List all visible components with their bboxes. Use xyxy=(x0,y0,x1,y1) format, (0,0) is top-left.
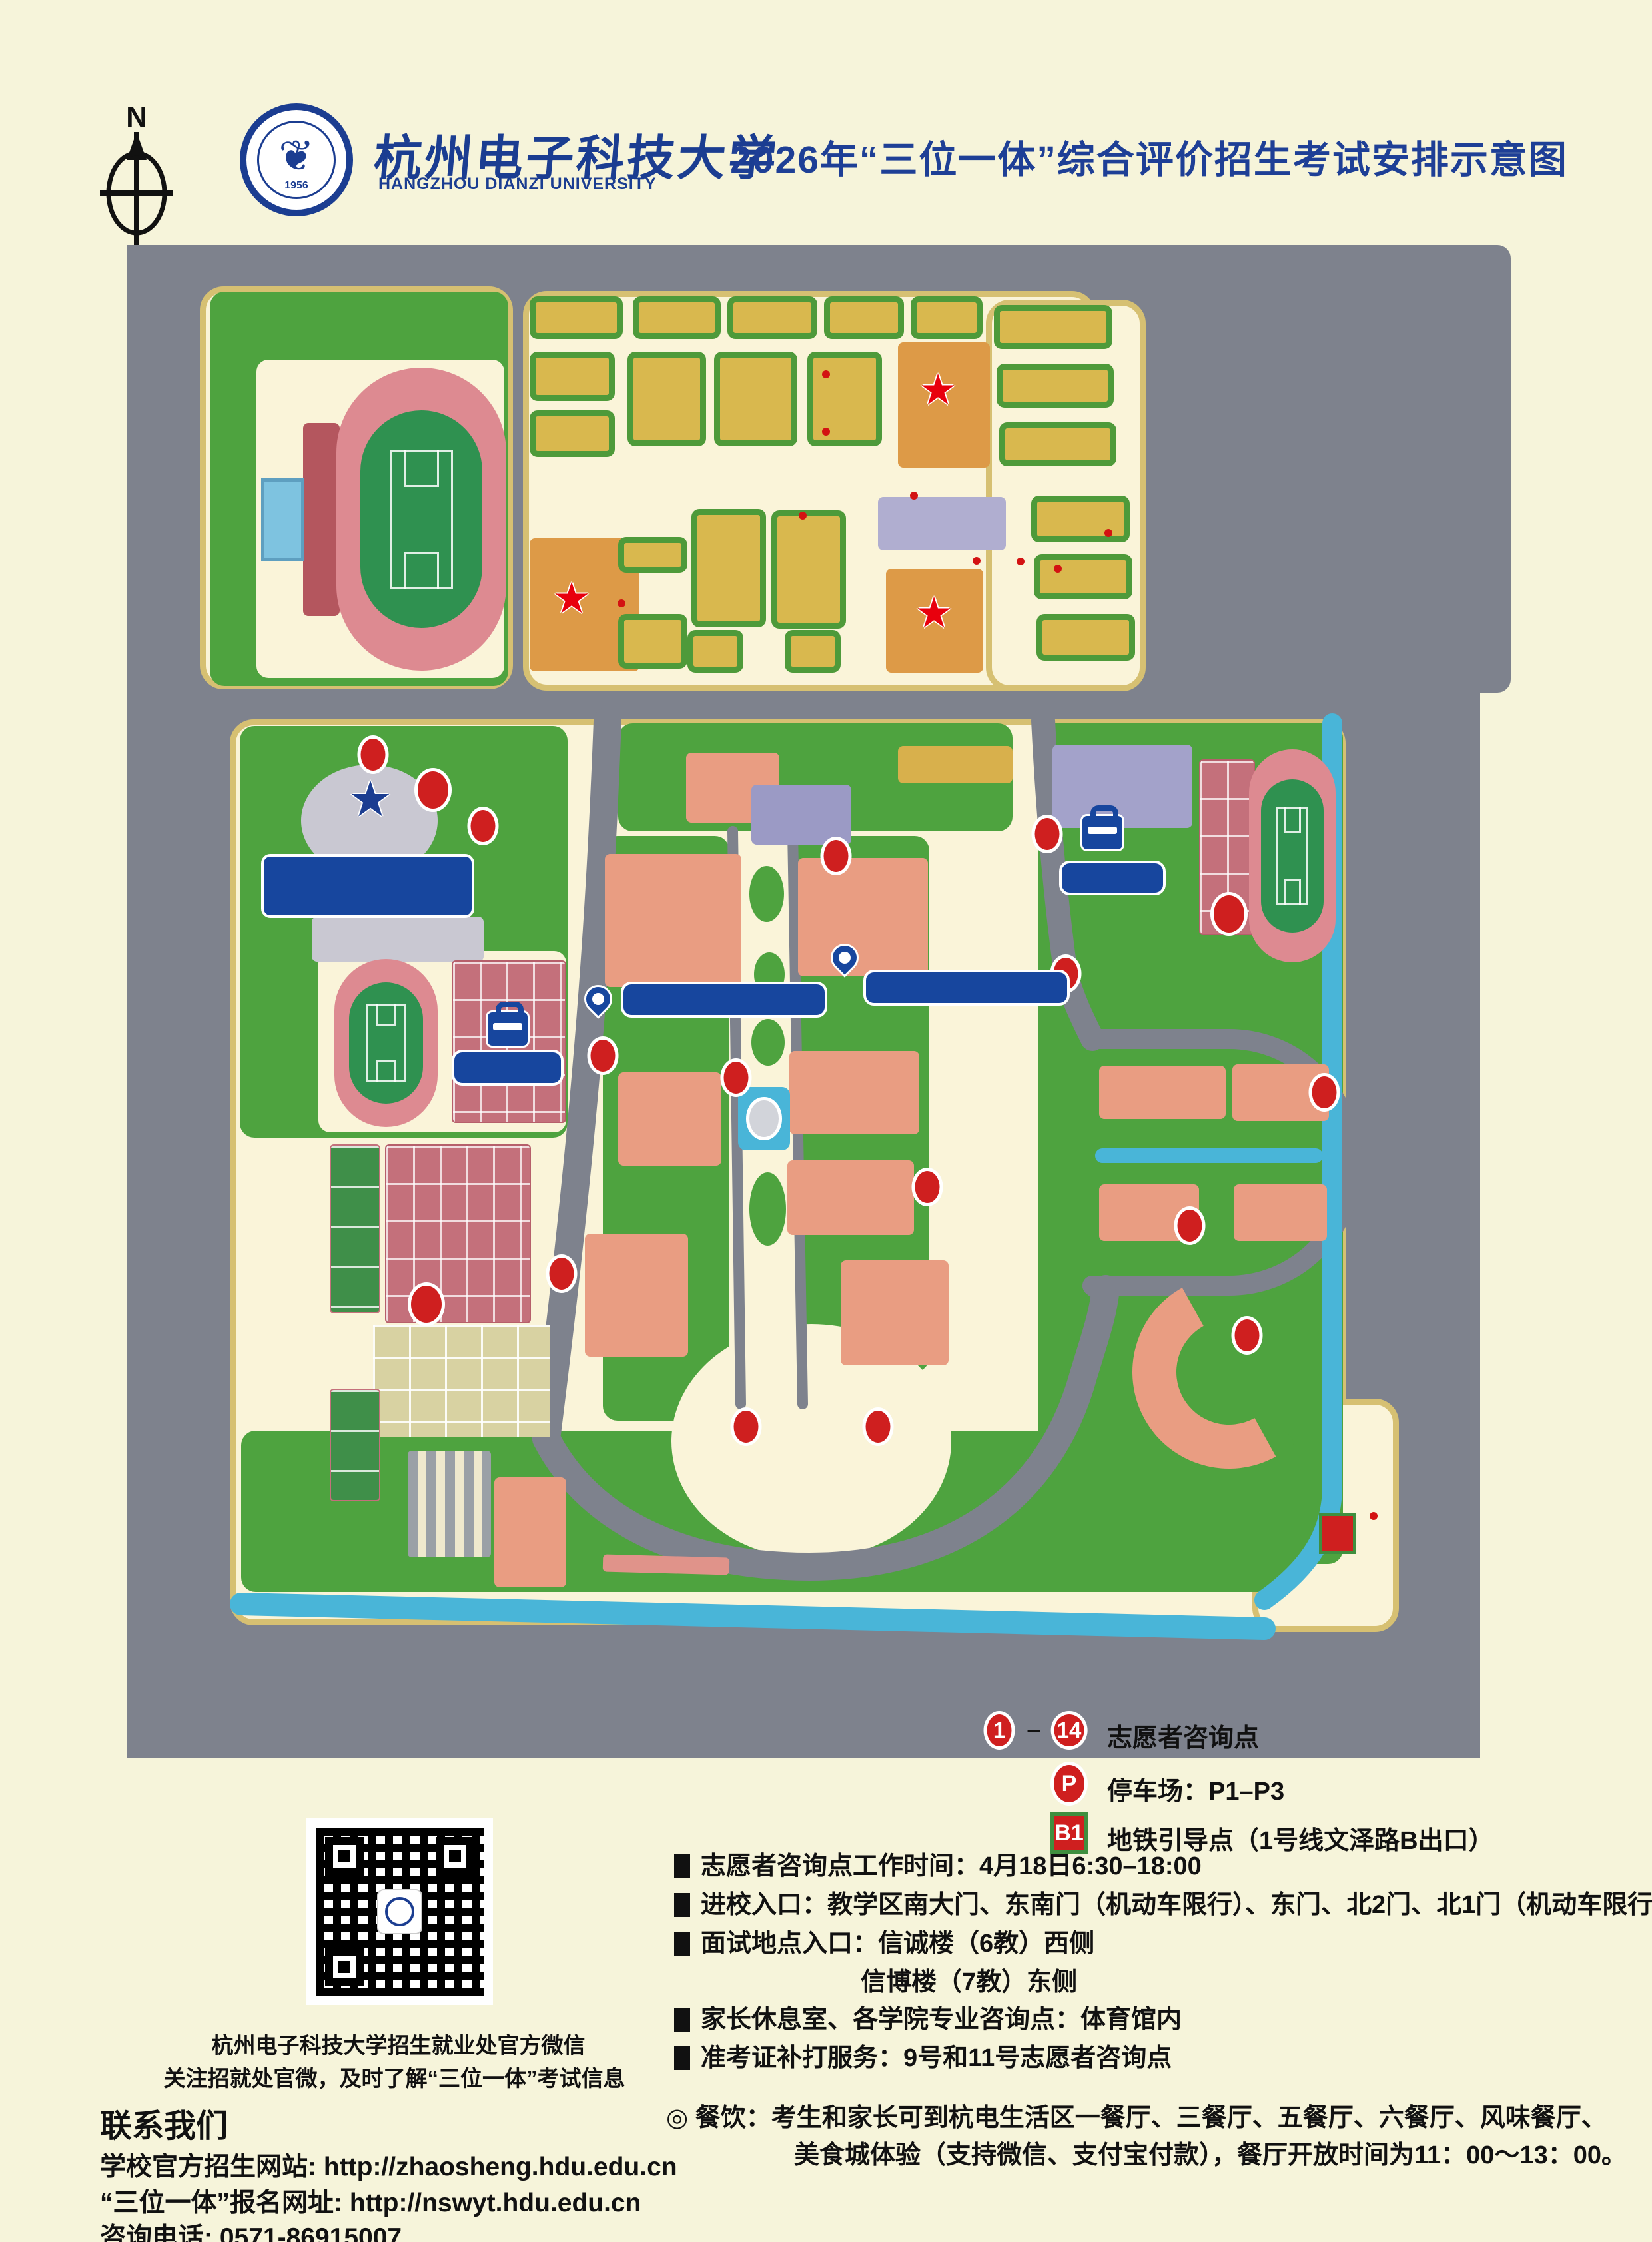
main-gate-bar xyxy=(603,1555,730,1575)
contact-heading: 联系我们 xyxy=(100,2099,228,2146)
lixing-building xyxy=(1234,1184,1327,1241)
note-entrances: 进校入口：教学区南大门、东南门（机动车限行）、东门、北2门、北1门（机动车限行） xyxy=(674,1884,1652,1920)
xinren-building xyxy=(841,1260,949,1365)
marker-volunteer-point-11 xyxy=(358,735,389,774)
note-ticket-reprint: 准考证补打服务：9号和11号志愿者咨询点 xyxy=(674,2037,1172,2073)
administration-building xyxy=(494,1477,566,1587)
building-dorm xyxy=(618,614,687,669)
note-parent-lounge: 家长休息室、各学院专业咨询点：体育馆内 xyxy=(674,1998,1182,2035)
football-field xyxy=(334,959,438,1127)
poster: N ❦ 1956 杭州电子科技大学 HANGZHOU DIANZI UNIVER… xyxy=(0,0,1652,2242)
axis-green-icon xyxy=(749,866,784,922)
building-dorm xyxy=(997,364,1114,408)
marker-volunteer-point-13 xyxy=(721,1058,752,1097)
note-catering-2: 美食城体验（支持微信、支付宝付款），餐厅开放时间为11：00～13：00。 xyxy=(794,2134,1627,2171)
building-dorm xyxy=(687,630,743,673)
bullet-icon xyxy=(674,1932,690,1956)
building-dorm xyxy=(627,352,706,446)
building-dorm xyxy=(530,296,623,339)
marker-parking-P1 xyxy=(408,1282,445,1326)
marker-volunteer-point-10 xyxy=(468,807,499,845)
marker-volunteer-point-14 xyxy=(546,1254,578,1293)
marker-metro-b1 xyxy=(1319,1513,1356,1554)
volleyball-courts xyxy=(373,1325,550,1437)
tennis-courts xyxy=(330,1144,380,1313)
bullet-icon xyxy=(674,1854,690,1878)
xinyi-building xyxy=(585,1234,688,1357)
staff-student-affairs-hall xyxy=(878,497,1006,550)
service-dot-icon xyxy=(822,370,830,378)
marker-volunteer-point-3 xyxy=(912,1168,943,1206)
contact-phone: 咨询电话: 0571-86915007 xyxy=(100,2217,402,2242)
central-plaza-fountain xyxy=(738,1087,790,1150)
building-dorm xyxy=(691,509,766,627)
axis-green-icon xyxy=(749,1172,786,1246)
marker-volunteer-point-9 xyxy=(821,837,852,875)
building-dorm xyxy=(785,630,841,673)
star-icon: ★ xyxy=(348,775,392,824)
wechat-qr-code xyxy=(306,1818,493,2005)
training-hall-building xyxy=(312,917,484,962)
shouzheng-building xyxy=(1099,1066,1226,1119)
bullet-icon xyxy=(674,2046,690,2070)
building-dorm xyxy=(530,410,615,457)
qr-caption-1: 杭州电子科技大学招生就业处官方微信 xyxy=(212,2028,586,2059)
swimming-pool xyxy=(261,478,304,561)
legend-badge-14: 14 xyxy=(1051,1711,1088,1750)
building-dorm xyxy=(633,296,721,339)
marker-parking-P2 xyxy=(1210,892,1248,936)
tag-box xyxy=(621,982,827,1018)
building-dorm xyxy=(999,422,1116,466)
building-dorm xyxy=(824,296,904,339)
marker-volunteer-point-8 xyxy=(1032,815,1063,853)
marker-volunteer-point-12 xyxy=(588,1036,619,1075)
note-catering-1: ◎ 餐饮：考生和家长可到杭电生活区一餐厅、三餐厅、五餐厅、六餐厅、风味餐厅、 xyxy=(666,2097,1607,2133)
legend-badge-1: 1 xyxy=(984,1711,1015,1750)
xinzhi-building xyxy=(618,1072,721,1166)
qr-logo-icon xyxy=(377,1889,422,1934)
building-dorm xyxy=(1036,614,1135,661)
service-dot-icon xyxy=(1054,565,1062,573)
building-dorm xyxy=(771,510,846,629)
stadium-track xyxy=(336,368,506,671)
legend-label-volunteer: 志愿者咨询点 xyxy=(1107,1717,1259,1754)
building-dorm xyxy=(911,296,983,339)
xinda-building xyxy=(898,746,1013,783)
marker-volunteer-point-1 xyxy=(731,1407,762,1446)
building-dorm xyxy=(727,296,817,339)
service-dot-icon xyxy=(1017,558,1025,565)
tag-box xyxy=(863,970,1070,1006)
xinli-building xyxy=(787,1160,914,1235)
building-dorm xyxy=(1031,496,1130,542)
bag-storage-icon xyxy=(1080,814,1124,851)
star-icon: ★ xyxy=(915,591,953,634)
service-dot-icon xyxy=(799,512,807,520)
qr-caption-2: 关注招就处官微，及时了解“三位一体”考试信息 xyxy=(164,2061,625,2093)
xincheng-building xyxy=(605,854,741,987)
library-building xyxy=(751,785,851,845)
tag-box xyxy=(452,1050,564,1086)
xinhe-building xyxy=(789,1051,919,1134)
athletics-field xyxy=(1249,749,1336,962)
service-dot-icon xyxy=(973,557,981,565)
legend-dash: – xyxy=(1027,1716,1040,1745)
service-dot-icon xyxy=(618,599,625,607)
service-dot-icon xyxy=(822,428,830,436)
building-dorm xyxy=(618,537,687,573)
legend-badge-p: P xyxy=(1050,1762,1088,1806)
building-dorm xyxy=(1034,554,1132,599)
tennis-courts xyxy=(330,1389,380,1501)
bullet-icon xyxy=(674,2008,690,2032)
natatorium-building xyxy=(303,423,340,616)
service-dot-icon xyxy=(910,492,918,500)
note-interview-entrance-2: 信博楼（7教）东侧 xyxy=(861,1961,1077,1998)
contact-apply-site: “三位一体”报名网址: http://nswyt.hdu.edu.cn xyxy=(100,2182,641,2219)
building-dorm xyxy=(530,352,615,401)
marker-volunteer-point-6 xyxy=(1309,1073,1340,1112)
note-interview-entrance: 面试地点入口：信诚楼（6教）西侧 xyxy=(674,1922,1094,1959)
admin-parking-structure xyxy=(408,1451,491,1557)
building-dorm xyxy=(994,305,1112,349)
service-dot-icon xyxy=(1370,1512,1378,1520)
star-icon: ★ xyxy=(552,577,590,619)
service-dot-icon xyxy=(1104,529,1112,537)
marker-volunteer-point-5 xyxy=(1232,1316,1263,1355)
star-icon: ★ xyxy=(919,368,957,411)
marker-volunteer-point-2 xyxy=(863,1407,894,1446)
building-dorm xyxy=(714,352,797,446)
marker-parking-P3 xyxy=(414,768,452,812)
xinbo-building xyxy=(798,858,928,976)
legend-label-parking: 停车场：P1–P3 xyxy=(1107,1770,1284,1807)
axis-green-icon xyxy=(751,1019,785,1066)
info-box xyxy=(261,854,474,918)
note-volunteer-hours: 志愿者咨询点工作时间：4月18日6:30–18:00 xyxy=(674,1845,1202,1882)
marker-volunteer-point-4 xyxy=(1174,1206,1206,1245)
building-dorm xyxy=(807,352,882,446)
bullet-icon xyxy=(674,1893,690,1917)
basketball-courts-west xyxy=(385,1144,531,1323)
contact-site: 学校官方招生网站: http://zhaosheng.hdu.edu.cn xyxy=(100,2146,677,2183)
tag-box xyxy=(1059,861,1166,895)
bag-storage-icon xyxy=(486,1010,530,1048)
